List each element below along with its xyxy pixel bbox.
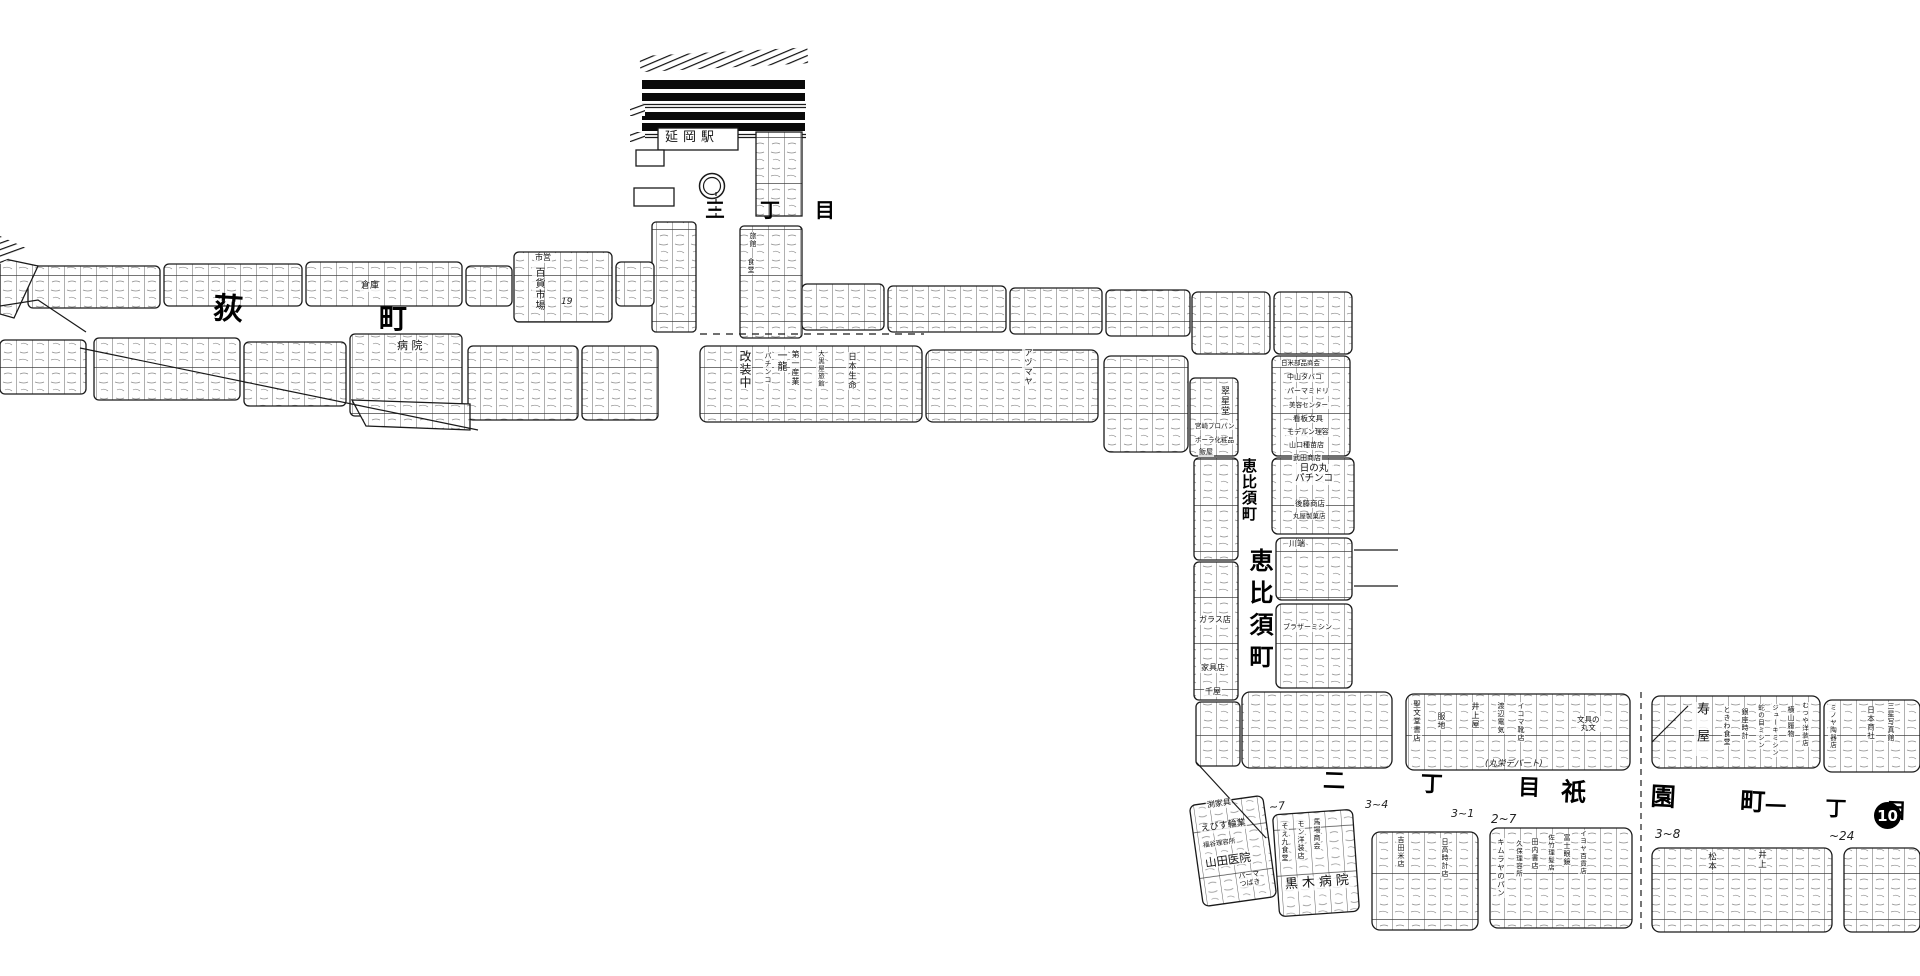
block-number: ~24: [1828, 830, 1855, 843]
block-number: 3~8: [1654, 828, 1681, 841]
label-kagu-ten: 家具店: [1200, 664, 1226, 673]
street-label-ebisu-small: 恵比須町: [1240, 458, 1257, 522]
label-fuji-megane: 富士眼鏡: [1562, 834, 1571, 866]
label-mutsuya-yosoten: むつや洋装店: [1800, 702, 1809, 747]
label-brother-mishin: ブラザーミシン: [1282, 624, 1333, 632]
label-fukuji: 服地: [1436, 712, 1446, 730]
label-kubo-riyosho: 久保理容所: [1514, 840, 1523, 878]
label-seibundo-shoten: 聖文堂書店: [1412, 700, 1422, 743]
label-satake-rihatsu: 佐竹理髪店: [1546, 834, 1555, 872]
residential-map: 荻 町 三 丁 目 恵比須町 恵比須町 二 丁 目 祇 園 町 一 丁 目 10…: [0, 0, 1920, 976]
label-tauchi-shoten: 田内書店: [1530, 838, 1539, 870]
label-daikokuya: 大黒屋旅館: [816, 350, 825, 388]
label-daiichi-sangyo: 第一産業: [790, 350, 800, 386]
label-perma-tsubaki: パーマ つばき: [1237, 870, 1262, 888]
label-maruei-depato: (丸栄デパート): [1484, 760, 1544, 769]
label-hanya: 飯屋: [1198, 449, 1214, 457]
block-number: ~7: [1267, 800, 1286, 814]
map-canvas: [0, 0, 1920, 976]
railway-embankment-hatching: [640, 47, 809, 72]
label-iyoya-hyakka: イヨヤ百貨店: [1578, 830, 1587, 875]
label-ryokan: 旅館: [748, 232, 757, 248]
label-takeda-shoten: 武田商店: [1292, 455, 1322, 463]
label-kanban-bungu: 看板文具: [1292, 415, 1324, 423]
label-nihon-shosha: 日本商社: [1866, 706, 1876, 740]
label-nichibei-buhin: 日米部品商会: [1280, 360, 1321, 367]
label-minoya-tokiten: ミノヤ陶器店: [1828, 704, 1837, 749]
label-inoue: 井上: [1756, 850, 1767, 869]
label-yoshida-kometen: 吉田米店: [1396, 836, 1405, 868]
label-shiei: 市営: [534, 254, 552, 263]
label-janome-mishin: 蛇の目ミシン: [1756, 704, 1765, 749]
hagimachi-south-blocks: [0, 334, 1098, 430]
street-label-hagi: 荻: [211, 293, 245, 328]
label-hyakka-ichiba: 百貨市場: [532, 267, 544, 311]
label-watanabe-denki: 渡辺電気: [1496, 702, 1505, 734]
label-ikoma-kutsuten: イコマ靴店: [1516, 702, 1525, 742]
label-shokudo: 食堂: [746, 258, 755, 274]
label-ginza-tokei: 銀座時計: [1740, 708, 1749, 740]
label-inoueya: 井上屋: [1470, 702, 1480, 729]
label-pola: ポーラ化粧品: [1194, 437, 1235, 444]
map-sheet-number-badge: 10: [1874, 802, 1901, 829]
label-byoin: 病 院: [396, 340, 424, 352]
label-biyo-center: 美容センター: [1288, 402, 1329, 409]
label-perma-midori: パーマミドリ: [1286, 388, 1330, 396]
label-ichiryu: 一龍: [774, 350, 786, 372]
label-hidaka-tokeiten: 日高時計店: [1440, 838, 1449, 878]
label-kotobukiya: 寿屋: [1694, 702, 1709, 756]
label-baba-shokai: 馬場商会: [1312, 818, 1321, 850]
label-nihon-seimei: 日本生命: [846, 352, 857, 390]
block-number: 3~4: [1364, 799, 1389, 811]
label-modern-riyo: モデルン理容: [1286, 429, 1330, 437]
label-yokoyama-hakimono: 横山履物: [1786, 706, 1795, 738]
block-number: 19: [560, 298, 573, 308]
label-soeku-shokudo: そえ九食堂: [1280, 822, 1289, 862]
label-kawabata: 川端: [1288, 540, 1306, 549]
block-number: 2~7: [1490, 813, 1517, 826]
label-nakayama-tabako: 中山タバコ: [1286, 374, 1323, 382]
label-matsumoto: 松本: [1706, 852, 1717, 871]
label-miyazaki-propane: 宮崎プロパン: [1194, 423, 1235, 430]
label-azumaya: アヅマヤ: [1022, 348, 1033, 386]
label-sansei-shashinkan: 三星写真館: [1886, 702, 1895, 742]
label-kimuraya-pan: キムラヤのパン: [1496, 838, 1506, 898]
label-senya: 千屋: [1204, 688, 1222, 697]
label-tokiwa-shokudo: ときわ食堂: [1722, 706, 1731, 746]
station-street-blocks: [652, 222, 802, 338]
label-bungu-no-marubun: 文具の 丸文: [1576, 716, 1601, 732]
street-label-sanchome: 三 丁 目: [704, 200, 850, 222]
label-mon-yosoten: モン洋装店: [1296, 820, 1305, 860]
label-hinomaru-pachinko: 日の丸 パチンコ: [1294, 464, 1334, 485]
label-suiseido: 翠星堂: [1218, 386, 1229, 416]
station-name-label: 延岡駅: [664, 131, 720, 145]
block-number: 3~1: [1450, 808, 1475, 820]
ebisu-west-blocks: [1104, 356, 1240, 766]
label-maruya-seika: 丸屋製菓店: [1292, 513, 1327, 520]
label-yamaguchi-shubyo: 山口種苗店: [1288, 442, 1325, 450]
label-glass-ten: ガラス店: [1198, 616, 1232, 625]
label-pachinko: パチンコ: [763, 352, 772, 384]
street-label-machi: 町: [378, 304, 408, 334]
label-juki-mishin: ジューキミシン: [1770, 704, 1779, 757]
roads: [0, 236, 1641, 932]
label-kaisochu: 改装中: [738, 350, 752, 389]
street-label-ebisu-large: 恵比須町: [1246, 548, 1272, 676]
label-goto-shoten: 後藤商店: [1294, 500, 1326, 508]
label-soko: 倉庫: [360, 282, 380, 292]
